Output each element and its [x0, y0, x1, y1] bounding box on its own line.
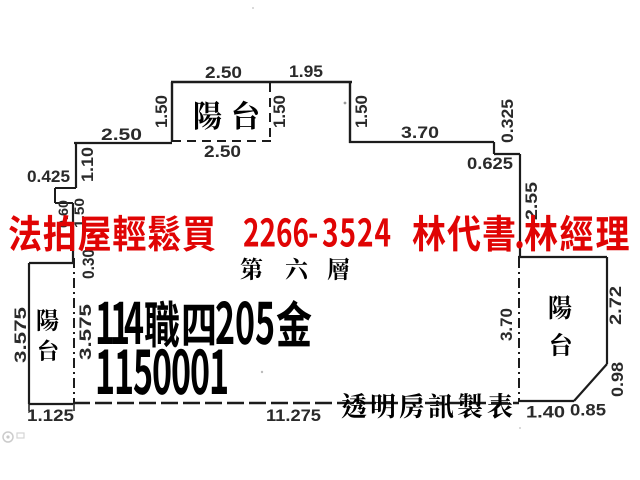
svg-text:2.50: 2.50	[205, 64, 242, 82]
svg-text:1.95: 1.95	[289, 63, 323, 81]
svg-text:1.50: 1.50	[271, 95, 289, 128]
svg-text:1.50: 1.50	[153, 95, 171, 128]
svg-text:0.85: 0.85	[570, 402, 606, 420]
svg-text:3.70: 3.70	[498, 308, 516, 341]
svg-text:3.575: 3.575	[12, 307, 30, 363]
svg-text:3.70: 3.70	[401, 124, 439, 142]
svg-text:2.50: 2.50	[101, 126, 142, 144]
svg-text:0.425: 0.425	[27, 168, 70, 186]
svg-text:1.50: 1.50	[353, 95, 371, 128]
svg-text:2.55: 2.55	[523, 182, 541, 220]
svg-text:2.50: 2.50	[204, 143, 241, 161]
svg-text:2.72: 2.72	[607, 286, 625, 325]
svg-text:3.575: 3.575	[77, 304, 95, 360]
svg-text:1.10: 1.10	[79, 147, 97, 182]
svg-text:11.275: 11.275	[266, 407, 321, 425]
svg-text:1.125: 1.125	[27, 407, 74, 425]
svg-text:0.325: 0.325	[499, 99, 517, 143]
svg-text:0.625: 0.625	[467, 155, 513, 173]
svg-text:1.40: 1.40	[526, 404, 565, 422]
svg-text:0.30: 0.30	[80, 249, 98, 279]
svg-text:0.98: 0.98	[609, 362, 627, 397]
